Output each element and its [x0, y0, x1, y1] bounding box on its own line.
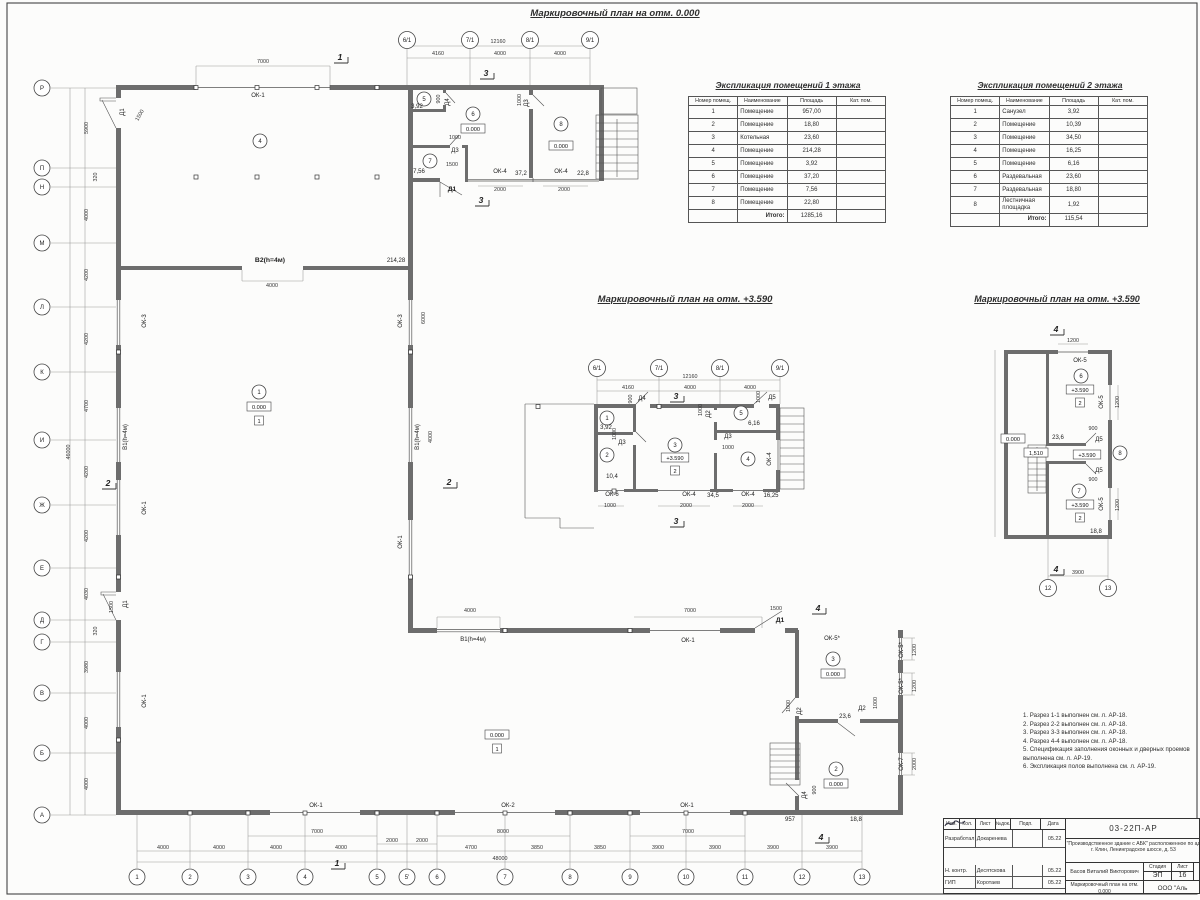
plan-label: Д4 — [802, 791, 808, 799]
svg-text:4: 4 — [1053, 564, 1059, 574]
svg-text:В1(h=4м): В1(h=4м) — [123, 424, 129, 450]
col-header: Площадь — [1049, 97, 1098, 106]
plan-label: В1(h=4м) — [460, 637, 486, 643]
plan-label: 320 — [93, 627, 99, 636]
table-cell: 1 — [689, 106, 738, 119]
plan-label: 46000 — [66, 445, 72, 460]
svg-text:23,6: 23,6 — [839, 714, 851, 720]
plan-label: 4200 — [84, 466, 90, 478]
svg-text:0.000: 0.000 — [1006, 437, 1020, 443]
table-cell: 7 — [951, 184, 1000, 197]
table-cell: 22,80 — [787, 197, 836, 210]
note-item: 1. Разрез 1-1 выполнен см. л. АР-18. — [1023, 712, 1195, 721]
svg-text:4700: 4700 — [84, 400, 90, 412]
plan-label: 22,8 — [577, 171, 589, 177]
section-mark: 2 — [102, 478, 116, 489]
plan-label: 2 — [1076, 398, 1085, 407]
svg-text:В: В — [40, 691, 44, 697]
svg-text:12: 12 — [799, 875, 806, 881]
plan-label: Д3 — [524, 99, 530, 107]
svg-text:ОК-2: ОК-2 — [501, 803, 515, 809]
svg-text:ОК-4: ОК-4 — [682, 492, 696, 498]
col-header: Площадь — [787, 97, 836, 106]
svg-text:3900: 3900 — [767, 845, 779, 851]
svg-text:7/1: 7/1 — [655, 366, 664, 372]
elevation-mark: +3.590 — [1073, 450, 1101, 459]
svg-text:ОК-1: ОК-1 — [251, 93, 265, 99]
table-row: 3Котельная23,60 — [689, 132, 886, 145]
svg-text:3900: 3900 — [1072, 570, 1084, 576]
sheet-number: 16 — [1172, 872, 1194, 881]
plan-label: 1500 — [446, 162, 458, 168]
plan-label: 4000 — [270, 845, 282, 851]
table-row: 6Помещение37,20 — [689, 171, 886, 184]
elevation-mark: 0.000 — [247, 402, 271, 411]
grid-axis-bubble: И — [34, 432, 50, 448]
elevation-mark: 0.000 — [549, 141, 573, 150]
svg-text:2000: 2000 — [558, 187, 570, 193]
svg-text:3: 3 — [674, 516, 679, 526]
svg-text:8000: 8000 — [497, 829, 509, 835]
svg-text:ОК-5*: ОК-5* — [899, 641, 905, 657]
svg-text:37,2: 37,2 — [515, 171, 527, 177]
table-cell — [1098, 213, 1147, 226]
plan-label: 4000 — [494, 51, 506, 57]
grid-axis-bubble: Л — [34, 299, 50, 315]
plan-label: 4200 — [84, 333, 90, 345]
plan-label: Д3 — [618, 440, 626, 446]
table-row: 2Помещение18,80 — [689, 119, 886, 132]
plan-label: 37,2 — [515, 171, 527, 177]
table-cell: Помещение — [738, 119, 787, 132]
elevation-mark: 0.000 — [461, 124, 485, 133]
grid-axis-bubble: 7 — [497, 869, 513, 885]
title-block-rows: РазработалДокаренева05.22Н. контр.Десятс… — [944, 830, 1065, 889]
plan-label: 214,28 — [387, 258, 406, 264]
grid-axis-bubble: В — [34, 685, 50, 701]
table-cell: 4 — [689, 145, 738, 158]
grid-axis-bubble: 1 — [129, 869, 145, 885]
grid-axis-bubble: Н — [34, 179, 50, 195]
header-cell: Лист — [976, 819, 996, 829]
table-cell: 7 — [689, 184, 738, 197]
plan-label: ОК-4 — [741, 492, 755, 498]
svg-text:Л: Л — [40, 305, 44, 311]
plan-label: 5900 — [84, 122, 90, 134]
svg-text:Д5: Д5 — [768, 395, 776, 401]
grid-axis-bubble: 9 — [622, 869, 638, 885]
project-description: "Производственное здание с АБК" располож… — [1066, 839, 1200, 863]
plan-label: В2(h=4м) — [255, 257, 285, 264]
plan-label: ОК-5 — [1099, 497, 1105, 511]
table-cell: Помещение — [738, 106, 787, 119]
title-block-right: 03-22П-АР "Производственное здание с АБК… — [1066, 819, 1200, 894]
plan-label: 4030 — [84, 588, 90, 600]
col-header: Номер помещ. — [689, 97, 738, 106]
svg-text:7000: 7000 — [684, 608, 696, 614]
svg-text:4000: 4000 — [464, 608, 476, 614]
svg-text:16,25: 16,25 — [763, 493, 779, 499]
table-cell: Лестничная площадка — [1000, 197, 1049, 214]
svg-text:1: 1 — [495, 747, 498, 753]
svg-text:2000: 2000 — [416, 838, 428, 844]
svg-text:13: 13 — [859, 875, 866, 881]
svg-text:ОК-4: ОК-4 — [767, 452, 773, 466]
svg-text:Н: Н — [40, 185, 44, 191]
header-cell: Дата — [1041, 819, 1065, 829]
room-number-bubble: 2 — [600, 448, 614, 462]
svg-text:1,510: 1,510 — [1029, 451, 1043, 457]
plan-label: 1000 — [722, 445, 734, 451]
grid-axis-bubble: 3 — [240, 869, 256, 885]
plan-label: 4000 — [464, 608, 476, 614]
svg-text:Д2: Д2 — [706, 410, 712, 418]
section-mark: 1 — [334, 52, 348, 63]
signature-icon — [1013, 865, 1043, 876]
svg-text:ОК-5*: ОК-5* — [899, 677, 905, 693]
plan-label: 2000 — [386, 838, 398, 844]
sheet-title-line1: Маркировочный план на отм. 0.000 — [1066, 882, 1143, 894]
table-cell: 6 — [951, 171, 1000, 184]
elevation-mark: 0.000 — [824, 779, 848, 788]
table-cell: Помещение — [738, 158, 787, 171]
plan-label: 8000 — [497, 829, 509, 835]
svg-text:1500: 1500 — [446, 162, 458, 168]
svg-text:1000: 1000 — [698, 404, 704, 416]
plan-label: ОК-2 — [501, 803, 515, 809]
plan-label: ОК-1 — [309, 803, 323, 809]
table-cell — [836, 145, 885, 158]
plan-label: 1500 — [135, 109, 146, 122]
svg-text:0.000: 0.000 — [829, 782, 843, 788]
svg-text:2: 2 — [1078, 401, 1081, 407]
svg-text:13: 13 — [1105, 586, 1112, 592]
svg-text:7/1: 7/1 — [466, 38, 475, 44]
table-cell: 8 — [689, 197, 738, 210]
svg-text:6/1: 6/1 — [593, 366, 602, 372]
plan-label: Д4 — [638, 396, 646, 402]
plan-label: 320 — [93, 173, 99, 182]
table-cell: Помещение — [738, 171, 787, 184]
svg-text:1200: 1200 — [1115, 499, 1121, 511]
table-cell — [836, 158, 885, 171]
plan-label: Д2 — [797, 707, 803, 715]
plan-label: 900 — [628, 395, 634, 404]
svg-text:3: 3 — [484, 68, 489, 78]
svg-text:3980: 3980 — [84, 661, 90, 673]
plan-label: ОК-1 — [398, 535, 404, 549]
svg-text:320: 320 — [93, 173, 99, 182]
svg-text:1: 1 — [257, 419, 260, 425]
elevation-mark: 0.000 — [821, 669, 845, 678]
table-cell: 4 — [951, 145, 1000, 158]
plan-label: 2 — [671, 466, 680, 475]
svg-text:12160: 12160 — [683, 374, 698, 380]
svg-text:4000: 4000 — [335, 845, 347, 851]
svg-text:7000: 7000 — [682, 829, 694, 835]
note-item: 3. Разрез 3-3 выполнен см. л. АР-18. — [1023, 729, 1195, 738]
plan-label: 3900 — [709, 845, 721, 851]
svg-text:ОК-1: ОК-1 — [142, 501, 148, 515]
svg-text:10: 10 — [683, 875, 690, 881]
svg-text:2000: 2000 — [680, 503, 692, 509]
section-mark: 3 — [670, 391, 684, 402]
table-total-row: Итого:115,54 — [951, 213, 1148, 226]
svg-text:4000: 4000 — [428, 431, 434, 443]
table-row: 1Помещение957,00 — [689, 106, 886, 119]
col-header: Кат. пом. — [1098, 97, 1147, 106]
table-cell: Помещение — [738, 145, 787, 158]
room-number-bubble: 3 — [668, 438, 682, 452]
svg-text:18,8: 18,8 — [1090, 529, 1102, 535]
grid-axis-bubble: К — [34, 364, 50, 380]
svg-text:ОК-1: ОК-1 — [680, 803, 694, 809]
table-cell: 2 — [951, 119, 1000, 132]
grid-axis-bubble: 11 — [737, 869, 753, 885]
plan-label: ОК-1 — [142, 501, 148, 515]
svg-text:0.000: 0.000 — [554, 144, 568, 150]
project-line2: г. Клин, Ленинградское шоссе, д. 53 — [1066, 847, 1200, 853]
section-mark: 4 — [1050, 564, 1064, 575]
svg-text:3850: 3850 — [531, 845, 543, 851]
table-cell: 37,20 — [787, 171, 836, 184]
plan-label: 7000 — [257, 59, 269, 65]
svg-text:46000: 46000 — [66, 445, 72, 460]
room-number-bubble: 1 — [252, 385, 266, 399]
svg-text:ОК-5: ОК-5 — [1099, 497, 1105, 511]
grid-axis-bubble: Ж — [34, 497, 50, 513]
svg-text:ОК-1: ОК-1 — [309, 803, 323, 809]
plan-label: 3900 — [826, 845, 838, 851]
room-number-bubble: 4 — [741, 452, 755, 466]
table-cell: 6 — [689, 171, 738, 184]
title-plan-3590-right: Маркировочный план на отм. +3.590 — [948, 294, 1166, 304]
col-header: Кат. пом. — [836, 97, 885, 106]
svg-text:1000: 1000 — [517, 94, 523, 106]
plan-label: ОК-1 — [142, 694, 148, 708]
svg-text:Р: Р — [40, 86, 44, 92]
plan-label: Д4 — [445, 98, 451, 106]
svg-text:2: 2 — [446, 477, 452, 487]
svg-text:ОК-1: ОК-1 — [142, 694, 148, 708]
plan-label: ОК-3 — [142, 314, 148, 328]
table-cell: Помещение — [738, 197, 787, 210]
plan-label: 900 — [436, 95, 442, 104]
plan-label: 900 — [812, 786, 818, 795]
svg-text:ОК-1: ОК-1 — [398, 535, 404, 549]
plan-label: 1200 — [912, 680, 918, 692]
table-row: 4Помещение214,28 — [689, 145, 886, 158]
table-cell — [951, 213, 1000, 226]
svg-text:4200: 4200 — [84, 269, 90, 281]
svg-text:1500: 1500 — [109, 601, 115, 613]
svg-text:6,16: 6,16 — [748, 421, 760, 427]
svg-text:ОК-3: ОК-3 — [142, 314, 148, 328]
plan-label: ОК-1 — [680, 803, 694, 809]
table-cell: Помещение — [1000, 119, 1049, 132]
svg-text:2: 2 — [105, 478, 111, 488]
elevation-mark: +3.590 — [1066, 500, 1094, 509]
table-cell: 115,54 — [1049, 213, 1098, 226]
plan-label: ОК-7 — [899, 757, 905, 771]
col-header: Номер помещ. — [951, 97, 1000, 106]
room-number-bubble: 2 — [829, 762, 843, 776]
table-cell — [836, 171, 885, 184]
plan-label: 1 — [493, 744, 502, 753]
grid-axis-bubble: 9/1 — [582, 32, 599, 49]
plan-label: 1500 — [109, 601, 115, 613]
plan-label: 12160 — [491, 39, 506, 45]
svg-text:900: 900 — [436, 95, 442, 104]
svg-text:12: 12 — [1045, 586, 1052, 592]
table-cell — [1098, 119, 1147, 132]
svg-text:1000: 1000 — [756, 391, 762, 403]
plan-label: 3,92 — [411, 104, 423, 110]
table-cell: 18,80 — [1049, 184, 1098, 197]
signature-icon — [1013, 877, 1043, 888]
stage-sheet-grid: Стадия Лист ЭП 16 — [1144, 863, 1200, 880]
svg-text:Д: Д — [40, 618, 44, 624]
table-cell: Помещение — [1000, 145, 1049, 158]
header-cell: Подп. — [1011, 819, 1041, 829]
table-cell: 5 — [689, 158, 738, 171]
company-name: ООО "Аль — [1144, 881, 1200, 894]
grid-axis-bubble: 6 — [429, 869, 445, 885]
title-block-left: Изм. Кол. Лист №док. Подп. Дата Разработ… — [944, 819, 1066, 894]
svg-text:4000: 4000 — [684, 385, 696, 391]
plan-label: 3850 — [531, 845, 543, 851]
svg-text:Д1: Д1 — [448, 186, 457, 193]
svg-text:К: К — [40, 370, 44, 376]
elevation-mark: +3.590 — [661, 453, 689, 462]
svg-text:2: 2 — [1078, 516, 1081, 522]
svg-text:1500: 1500 — [770, 606, 782, 612]
note-item: 4. Разрез 4-4 выполнен см. л. АР-18. — [1023, 738, 1195, 747]
svg-text:900: 900 — [1089, 477, 1098, 483]
svg-text:4200: 4200 — [84, 530, 90, 542]
room-number-bubble: 7 — [1072, 484, 1086, 498]
table-cell: Помещение — [1000, 158, 1049, 171]
table-cell — [689, 210, 738, 223]
svg-text:ОК-1: ОК-1 — [681, 638, 695, 644]
plan-label: 23,6 — [1052, 435, 1064, 441]
title-plan-3590-mid: Маркировочный план на отм. +3.590 — [575, 294, 795, 305]
plan-label: 2000 — [416, 838, 428, 844]
plan-label: ОК-5* — [899, 641, 905, 657]
svg-text:4000: 4000 — [157, 845, 169, 851]
stage-label: Стадия — [1144, 863, 1172, 872]
grid-axis-bubble: 8/1 — [522, 32, 539, 49]
plan-label: 1200 — [1115, 396, 1121, 408]
grid-axis-bubble: 9/1 — [772, 360, 789, 377]
stage-value: ЭП — [1144, 872, 1172, 881]
svg-text:ОК-7: ОК-7 — [899, 757, 905, 771]
plan-label: 900 — [1089, 477, 1098, 483]
plan-label: В1(h=4м) — [123, 424, 129, 450]
plan-label: 12160 — [683, 374, 698, 380]
table-cell: 8 — [951, 197, 1000, 214]
svg-text:7000: 7000 — [311, 829, 323, 835]
grid-axis-bubble: Г — [34, 634, 50, 650]
plan-label: 3980 — [84, 661, 90, 673]
svg-text:4200: 4200 — [84, 466, 90, 478]
plan-label: 4200 — [84, 269, 90, 281]
title-plan-0000: Маркировочный план на отм. 0.000 — [505, 8, 725, 19]
plan-label: 957 — [785, 817, 796, 823]
plan-label: 3,92 — [600, 425, 612, 431]
table-cell: 214,28 — [787, 145, 836, 158]
svg-text:+3.590: +3.590 — [1078, 453, 1095, 459]
section-mark: 1 — [331, 858, 345, 869]
svg-text:1200: 1200 — [1115, 396, 1121, 408]
rooms-table-floor1: Номер помещ.НаименованиеПлощадьКат. пом.… — [688, 96, 886, 223]
plan-label: ОК-5* — [824, 636, 840, 642]
svg-text:3900: 3900 — [826, 845, 838, 851]
svg-text:Д3: Д3 — [451, 148, 459, 154]
table-cell: Раздевальная — [1000, 184, 1049, 197]
plan-label: 4000 — [84, 778, 90, 790]
plan-label: 3900 — [767, 845, 779, 851]
svg-text:4: 4 — [1053, 324, 1059, 334]
grid-axis-bubble: 8 — [562, 869, 578, 885]
plan-label: 2000 — [558, 187, 570, 193]
svg-text:320: 320 — [93, 627, 99, 636]
table-cell: 23,60 — [1049, 171, 1098, 184]
table-row: 2Помещение10,39 — [951, 119, 1148, 132]
grid-axis-bubble: Д — [34, 612, 50, 628]
grid-axis-bubble: П — [34, 160, 50, 176]
room-number-bubble: 6 — [1074, 369, 1088, 383]
svg-text:7000: 7000 — [257, 59, 269, 65]
svg-text:4000: 4000 — [266, 283, 278, 289]
svg-text:23,6: 23,6 — [1052, 435, 1064, 441]
plan-label: 2000 — [742, 503, 754, 509]
svg-text:1200: 1200 — [912, 680, 918, 692]
svg-text:+3.590: +3.590 — [1071, 388, 1088, 394]
svg-text:2: 2 — [673, 469, 676, 475]
sheet-label: Лист — [1172, 863, 1194, 872]
svg-text:+3.590: +3.590 — [1071, 503, 1088, 509]
plan-label: 1000 — [786, 700, 792, 712]
plan-label: 900 — [1089, 426, 1098, 432]
table-cell — [836, 119, 885, 132]
svg-text:ОК-5: ОК-5 — [1099, 395, 1105, 409]
svg-text:1000: 1000 — [604, 503, 616, 509]
svg-text:4000: 4000 — [494, 51, 506, 57]
titleblock-row: ГИПКоротаев05.22 — [944, 877, 1065, 889]
table-cell: 2 — [689, 119, 738, 132]
col-header: Наименование — [738, 97, 787, 106]
table-cell — [1098, 145, 1147, 158]
plan-label: ОК-1 — [681, 638, 695, 644]
svg-text:11: 11 — [742, 875, 749, 881]
plan-label: Д2 — [706, 410, 712, 418]
table-header-row: Номер помещ.НаименованиеПлощадьКат. пом. — [951, 97, 1148, 106]
svg-text:Е: Е — [40, 566, 44, 572]
plan-label: 4000 — [213, 845, 225, 851]
grid-axis-bubble: 5' — [399, 869, 415, 885]
table-row: 5Помещение6,16 — [951, 158, 1148, 171]
svg-text:22,8: 22,8 — [577, 171, 589, 177]
svg-text:ОК-4: ОК-4 — [554, 169, 568, 175]
svg-text:3: 3 — [479, 195, 484, 205]
room-number-bubble: 8 — [554, 117, 568, 131]
svg-text:18,8: 18,8 — [850, 817, 862, 823]
svg-text:1200: 1200 — [912, 644, 918, 656]
table-cell: 34,50 — [1049, 132, 1098, 145]
plan-label: 4000 — [84, 717, 90, 729]
elevation-mark: 1,510 — [1024, 448, 1048, 457]
